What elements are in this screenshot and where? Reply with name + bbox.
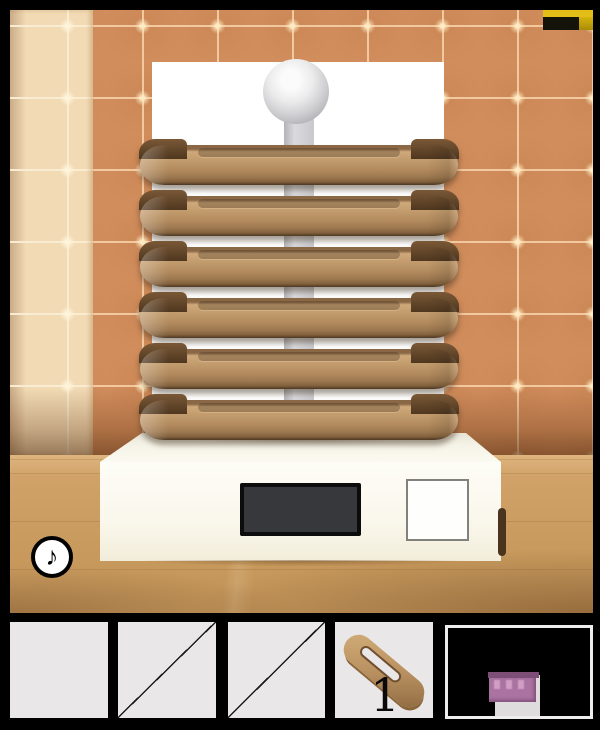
scale-display[interactable] [240,483,361,536]
base-side-shadow [498,508,506,556]
item-count-label: 1 [363,672,407,718]
ring-6[interactable] [140,400,458,440]
ring-top-hole [198,148,400,157]
inventory-slot-2[interactable] [118,622,216,718]
yellow-object-shadow [543,17,579,30]
base-floor-shadow [96,560,508,568]
plaque-engraving [494,680,530,689]
music-note-icon: ♪ [46,543,59,569]
ring-5[interactable] [140,349,458,389]
ring-top-hole [198,403,400,412]
ring-3[interactable] [140,247,458,287]
game-screen: ♪ 1 [0,0,600,730]
purple-plaque [488,672,539,702]
ring-2[interactable] [140,196,458,236]
inventory-slot-1[interactable] [10,622,108,718]
music-toggle-button[interactable]: ♪ [31,536,73,578]
room-scene: ♪ [10,10,593,613]
ring-top-hole [198,199,400,208]
yellow-object-tab [579,17,593,30]
scale-white-button[interactable] [406,479,469,541]
pole-ball-handle[interactable] [263,59,329,124]
ring-1[interactable] [140,145,458,185]
yellow-object-corner[interactable] [543,10,593,30]
ring-top-hole [198,352,400,361]
ring-top-hole [198,250,400,259]
inventory-slot-4[interactable]: 1 [335,622,433,718]
item-viewer-box[interactable] [445,625,593,719]
ring-4[interactable] [140,298,458,338]
inventory-slot-3[interactable] [228,622,325,718]
ring-top-hole [198,301,400,310]
